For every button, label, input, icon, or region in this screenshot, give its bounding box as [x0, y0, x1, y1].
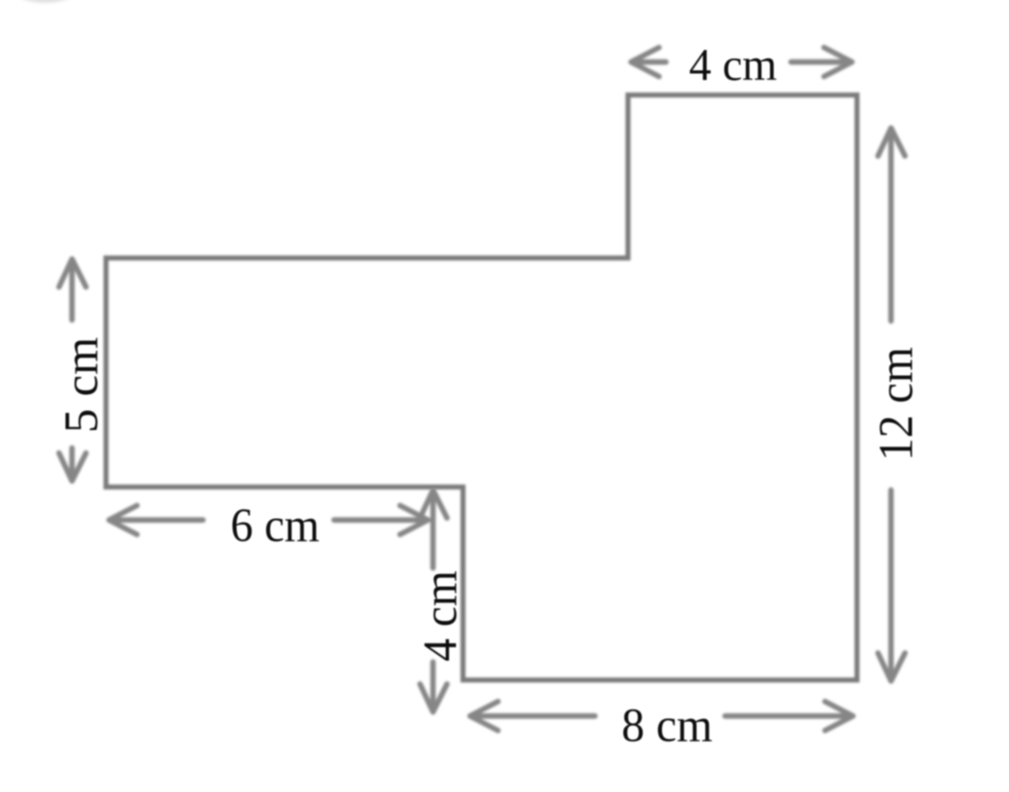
svg-text:8 cm: 8 cm — [622, 699, 713, 752]
svg-text:4 cm: 4 cm — [414, 571, 467, 662]
svg-text:12 cm: 12 cm — [868, 347, 923, 461]
svg-text:6 cm: 6 cm — [231, 499, 320, 552]
svg-text:4 cm: 4 cm — [689, 40, 777, 90]
svg-text:5 cm: 5 cm — [55, 337, 108, 433]
